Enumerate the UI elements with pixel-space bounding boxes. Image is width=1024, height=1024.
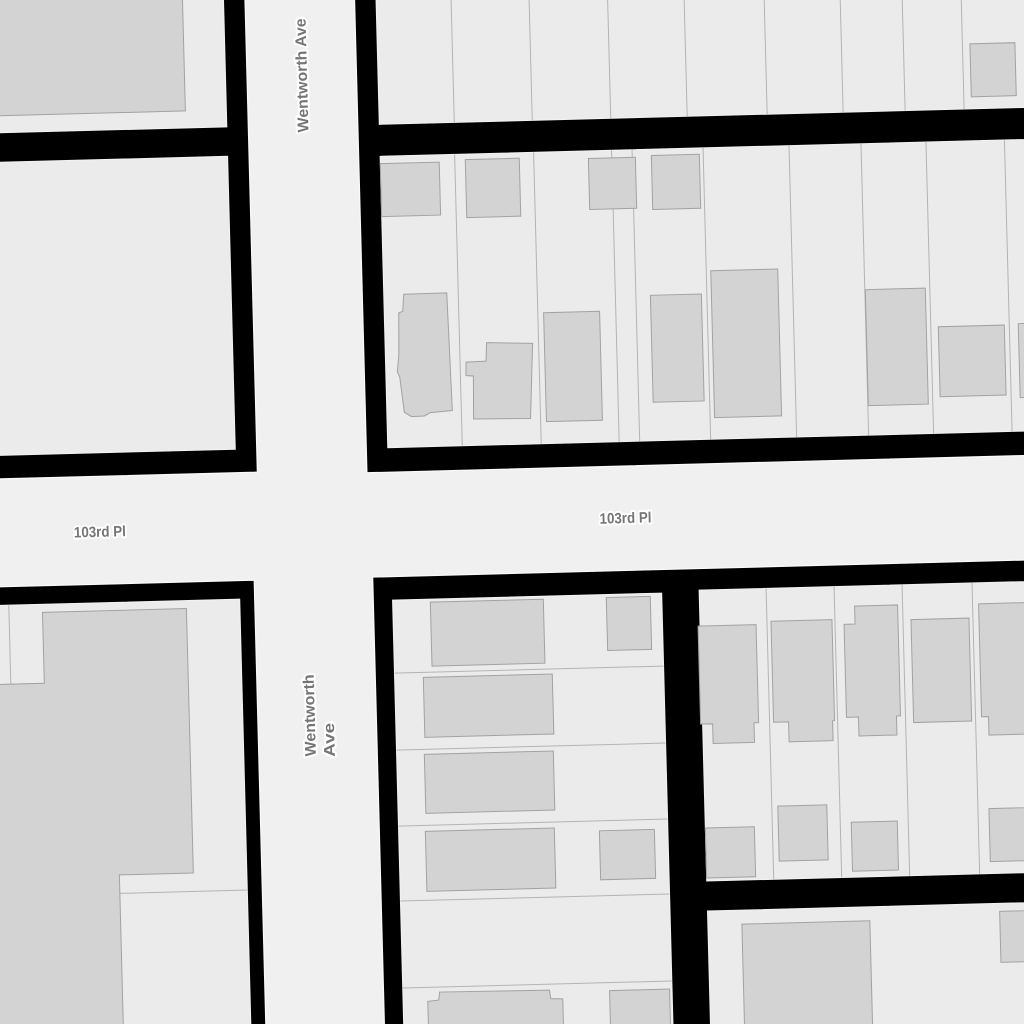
svg-text:Wentworth: Wentworth	[301, 674, 320, 756]
svg-text:Wentworth Ave: Wentworth Ave	[292, 18, 312, 133]
svg-text:Ave: Ave	[321, 722, 339, 757]
svg-text:103rd Pl: 103rd Pl	[599, 509, 651, 527]
svg-text:103rd Pl: 103rd Pl	[74, 523, 126, 541]
